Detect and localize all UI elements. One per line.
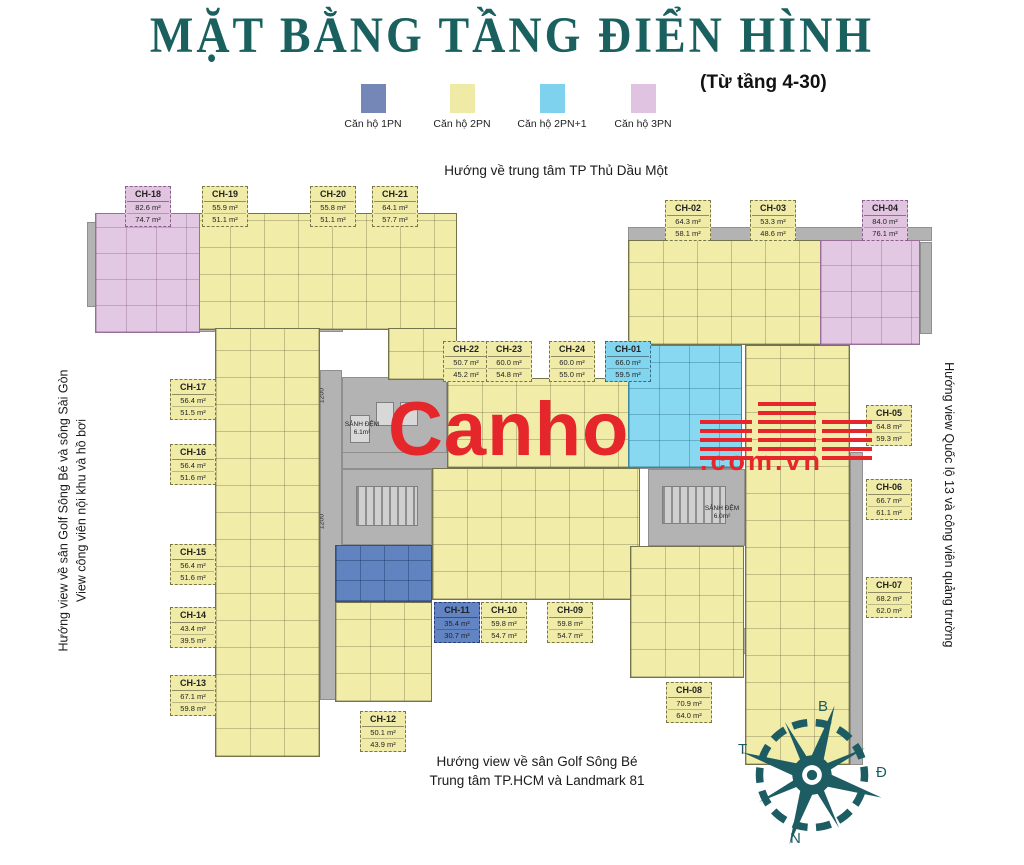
unit-area-gross: 82.6 m²	[127, 202, 169, 213]
direction-right: Hướng view Quốc lộ 13 và công viên quảng…	[939, 285, 957, 725]
wing-left	[215, 328, 320, 757]
unit-area-net: 54.7 m²	[549, 629, 591, 641]
unit-id: CH-20	[312, 188, 354, 202]
legend-swatch-3pn-icon	[631, 84, 656, 113]
unit-area-net: 54.7 m²	[483, 629, 525, 641]
unit-block-ch18-3pn	[95, 213, 200, 333]
unit-label-ch-12: CH-12 50.1 m² 43.9 m²	[360, 711, 406, 752]
unit-area-net: 76.1 m²	[864, 227, 906, 239]
unit-area-gross: 60.0 m²	[488, 357, 530, 368]
compass-east-label: Đ	[876, 764, 887, 781]
unit-label-ch-07: CH-07 68.2 m² 62.0 m²	[866, 577, 912, 618]
legend-item-2pn: Căn hộ 2PN	[414, 84, 510, 130]
unit-id: CH-01	[607, 343, 649, 357]
unit-area-gross: 35.4 m²	[436, 618, 478, 629]
lobby-label-2: SẢNH ĐỆM 6.0m²	[700, 505, 744, 521]
unit-area-gross: 64.1 m²	[374, 202, 416, 213]
unit-label-ch-24: CH-24 60.0 m² 55.0 m²	[549, 341, 595, 382]
unit-id: CH-07	[868, 579, 910, 593]
unit-area-gross: 70.9 m²	[668, 698, 710, 709]
unit-id: CH-08	[668, 684, 710, 698]
lobby-name: SẢNH ĐỆM	[700, 505, 744, 513]
unit-area-net: 64.0 m²	[668, 709, 710, 721]
legend-label-3pn: Căn hộ 3PN	[614, 118, 671, 130]
unit-area-net: 62.0 m²	[868, 604, 910, 616]
unit-id: CH-21	[374, 188, 416, 202]
unit-id: CH-10	[483, 604, 525, 618]
legend-swatch-2pn-icon	[450, 84, 475, 113]
lobby-area: 6.1m²	[340, 429, 384, 437]
unit-area-gross: 43.4 m²	[172, 623, 214, 634]
unit-id: CH-22	[445, 343, 487, 357]
unit-area-net: 51.1 m²	[312, 213, 354, 225]
legend-item-1pn: Căn hộ 1PN	[325, 84, 421, 130]
legend-swatch-2pn1-icon	[540, 84, 565, 113]
unit-area-net: 51.5 m²	[172, 406, 214, 418]
unit-label-ch-17: CH-17 56.4 m² 51.5 m²	[170, 379, 216, 420]
unit-id: CH-19	[204, 188, 246, 202]
unit-label-ch-19: CH-19 55.9 m² 51.1 m²	[202, 186, 248, 227]
unit-label-ch-02: CH-02 64.3 m² 58.1 m²	[665, 200, 711, 241]
unit-area-net: 51.6 m²	[172, 571, 214, 583]
unit-area-gross: 50.1 m²	[362, 727, 404, 738]
unit-area-gross: 59.8 m²	[483, 618, 525, 629]
unit-area-net: 61.1 m²	[868, 506, 910, 518]
unit-id: CH-11	[436, 604, 478, 618]
unit-label-ch-23: CH-23 60.0 m² 54.8 m²	[486, 341, 532, 382]
legend-label-1pn: Căn hộ 1PN	[344, 118, 401, 130]
unit-area-gross: 56.4 m²	[172, 395, 214, 406]
unit-area-net: 43.9 m²	[362, 738, 404, 750]
unit-area-net: 59.8 m²	[172, 702, 214, 714]
unit-label-ch-03: CH-03 53.3 m² 48.6 m²	[750, 200, 796, 241]
unit-area-gross: 59.8 m²	[549, 618, 591, 629]
direction-left-line1: Hướng view về sân Golf Sông Bé và sông S…	[56, 291, 74, 731]
compass-north-label: B	[818, 698, 828, 715]
unit-label-ch-14: CH-14 43.4 m² 39.5 m²	[170, 607, 216, 648]
unit-id: CH-24	[551, 343, 593, 357]
compass-south-label: N	[790, 830, 801, 847]
unit-area-net: 51.1 m²	[204, 213, 246, 225]
unit-id: CH-06	[868, 481, 910, 495]
unit-label-ch-04: CH-04 84.0 m² 76.1 m²	[862, 200, 908, 241]
unit-area-gross: 66.7 m²	[868, 495, 910, 506]
unit-id: CH-04	[864, 202, 906, 216]
unit-id: CH-15	[172, 546, 214, 560]
unit-area-net: 57.7 m²	[374, 213, 416, 225]
unit-id: CH-12	[362, 713, 404, 727]
unit-area-net: 55.0 m²	[551, 368, 593, 380]
staircase-left	[356, 486, 418, 526]
direction-bottom-line2: Trung tâm TP.HCM và Landmark 81	[337, 772, 737, 791]
unit-block-ch04-3pn	[820, 240, 920, 345]
unit-label-ch-09: CH-09 59.8 m² 54.7 m²	[547, 602, 593, 643]
unit-label-ch-06: CH-06 66.7 m² 61.1 m²	[866, 479, 912, 520]
unit-area-net: 59.5 m²	[607, 368, 649, 380]
legend-item-3pn: Căn hộ 3PN	[595, 84, 691, 130]
unit-block-ch11-1pn	[335, 545, 432, 602]
unit-id: CH-09	[549, 604, 591, 618]
unit-area-net: 59.3 m²	[868, 432, 910, 444]
unit-label-ch-01: CH-01 66.0 m² 59.5 m²	[605, 341, 651, 382]
unit-area-gross: 66.0 m²	[607, 357, 649, 368]
unit-area-gross: 55.8 m²	[312, 202, 354, 213]
unit-id: CH-03	[752, 202, 794, 216]
unit-area-gross: 64.3 m²	[667, 216, 709, 227]
roof-strip-right-stub	[920, 242, 932, 334]
unit-label-ch-18: CH-18 82.6 m² 74.7 m²	[125, 186, 171, 227]
legend-label-2pn: Căn hộ 2PN	[433, 118, 490, 130]
compass-rose-icon	[737, 700, 887, 850]
unit-area-gross: 84.0 m²	[864, 216, 906, 227]
unit-area-net: 74.7 m²	[127, 213, 169, 225]
wing-topleft	[195, 213, 457, 330]
floorplan-poster: MẶT BẰNG TẦNG ĐIỂN HÌNH (Từ tầng 4-30) C…	[0, 0, 1024, 865]
unit-id: CH-14	[172, 609, 214, 623]
unit-area-net: 30.7 m²	[436, 629, 478, 641]
direction-left-line2: View công viên nội khu và hồ bơi	[73, 291, 91, 731]
building-icon	[822, 418, 872, 460]
page-title: MẶT BẰNG TẦNG ĐIỂN HÌNH	[0, 6, 1024, 64]
wing-bottom-middle	[432, 468, 640, 600]
unit-area-gross: 60.0 m²	[551, 357, 593, 368]
lobby-label-1: SẢNH ĐỆM 6.1m²	[340, 421, 384, 437]
compass-west-label: T	[738, 741, 747, 758]
unit-area-net: 58.1 m²	[667, 227, 709, 239]
canho-domain: .com.vn	[700, 446, 823, 477]
unit-area-gross: 53.3 m²	[752, 216, 794, 227]
unit-label-ch-20: CH-20 55.8 m² 51.1 m²	[310, 186, 356, 227]
unit-id: CH-23	[488, 343, 530, 357]
unit-area-gross: 56.4 m²	[172, 560, 214, 571]
unit-label-ch-21: CH-21 64.1 m² 57.7 m²	[372, 186, 418, 227]
unit-area-net: 39.5 m²	[172, 634, 214, 646]
unit-id: CH-18	[127, 188, 169, 202]
unit-label-ch-13: CH-13 67.1 m² 59.8 m²	[170, 675, 216, 716]
direction-bottom: Hướng view về sân Golf Sông Bé Trung tâm…	[337, 753, 737, 791]
unit-block-ch08	[630, 546, 744, 678]
legend-label-2pn1: Căn hộ 2PN+1	[517, 118, 586, 130]
unit-area-net: 48.6 m²	[752, 227, 794, 239]
unit-label-ch-08: CH-08 70.9 m² 64.0 m²	[666, 682, 712, 723]
unit-area-gross: 64.8 m²	[868, 421, 910, 432]
canho-logo: Canho	[388, 392, 629, 468]
unit-block-ch12	[335, 602, 432, 702]
lobby-area: 6.0m²	[700, 513, 744, 521]
unit-area-net: 51.6 m²	[172, 471, 214, 483]
unit-id: CH-17	[172, 381, 214, 395]
unit-label-ch-05: CH-05 64.8 m² 59.3 m²	[866, 405, 912, 446]
unit-label-ch-15: CH-15 56.4 m² 51.6 m²	[170, 544, 216, 585]
unit-label-ch-22: CH-22 50.7 m² 45.2 m²	[443, 341, 489, 382]
unit-id: CH-13	[172, 677, 214, 691]
unit-area-gross: 56.4 m²	[172, 460, 214, 471]
unit-area-gross: 50.7 m²	[445, 357, 487, 368]
unit-label-ch-10: CH-10 59.8 m² 54.7 m²	[481, 602, 527, 643]
unit-id: CH-05	[868, 407, 910, 421]
unit-area-net: 54.8 m²	[488, 368, 530, 380]
unit-label-ch-16: CH-16 56.4 m² 51.6 m²	[170, 444, 216, 485]
direction-top: Hướng về trung tâm TP Thủ Dầu Một	[356, 162, 756, 181]
lobby-name: SẢNH ĐỆM	[340, 421, 384, 429]
legend-item-2pn1: Căn hộ 2PN+1	[504, 84, 600, 130]
unit-area-gross: 67.1 m²	[172, 691, 214, 702]
direction-left: Hướng view về sân Golf Sông Bé và sông S…	[56, 291, 91, 731]
unit-area-gross: 68.2 m²	[868, 593, 910, 604]
floor-range-subtitle: (Từ tầng 4-30)	[700, 72, 880, 94]
unit-area-net: 45.2 m²	[445, 368, 487, 380]
unit-id: CH-16	[172, 446, 214, 460]
direction-bottom-line1: Hướng view về sân Golf Sông Bé	[337, 753, 737, 772]
legend-swatch-1pn-icon	[361, 84, 386, 113]
unit-label-ch-11: CH-11 35.4 m² 30.7 m²	[434, 602, 480, 643]
unit-id: CH-02	[667, 202, 709, 216]
unit-area-gross: 55.9 m²	[204, 202, 246, 213]
